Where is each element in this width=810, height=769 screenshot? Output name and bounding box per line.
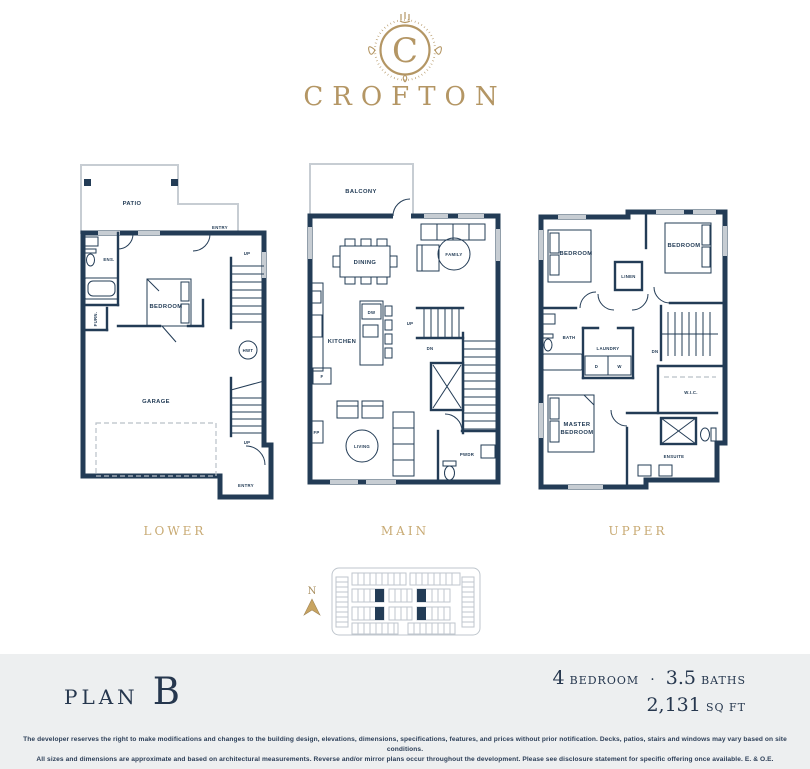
specs-line-1: 4 BEDROOM · 3.5 BATHS	[552, 666, 746, 693]
bed-label: BEDROOM	[570, 674, 640, 687]
bed-count: 4	[552, 667, 564, 689]
info-band: PLAN B 4 BEDROOM · 3.5 BATHS 2,131 SQ FT…	[0, 654, 810, 769]
room-label-bedroom: BEDROOM	[149, 304, 182, 310]
bath-label: BATHS	[701, 674, 746, 687]
hwt-label: HWT	[243, 348, 254, 353]
room-label-bedroom-right: BEDROOM	[667, 243, 700, 249]
stairs-up-label2: UP	[244, 440, 251, 445]
room-label-living: LIVING	[354, 444, 370, 449]
room-label-master-1: MASTER	[564, 422, 591, 428]
north-arrow-icon	[304, 599, 320, 615]
room-label-ens: ENS.	[103, 257, 114, 262]
room-label-linen: LINEN	[621, 274, 635, 279]
stairs-up-label: UP	[407, 321, 414, 326]
fridge-label: F	[321, 374, 324, 379]
monogram-letter: C	[392, 31, 418, 71]
floor-label-upper: UPPER	[528, 524, 748, 538]
crofton-monogram-logo: C	[355, 10, 455, 84]
lower-walls	[83, 233, 271, 497]
brochure-page: C CROFTON PATIO ENTRY ENS. FURN.	[0, 0, 810, 769]
plan-title: PLAN B	[64, 670, 180, 713]
room-label-entry-bottom: ENTRY	[238, 483, 254, 488]
room-label-dining: DINING	[354, 260, 377, 266]
disclaimer-line-1: The developer reserves the right to make…	[20, 735, 790, 755]
room-label-patio: PATIO	[123, 201, 142, 207]
specs-line-2: 2,131 SQ FT	[552, 693, 746, 720]
room-label-ensuite: ENSUITE	[664, 454, 685, 459]
bath-count: 3.5	[666, 667, 696, 689]
dw-label: DW	[368, 310, 376, 315]
room-label-entry-top: ENTRY	[212, 225, 228, 230]
room-label-furn: FURN.	[93, 312, 98, 327]
room-label-bath: BATH	[563, 335, 576, 340]
specs-separator: ·	[644, 672, 660, 688]
stairs-up-label: UP	[244, 251, 251, 256]
floor-label-main: MAIN	[300, 524, 510, 538]
floorplan-lower: PATIO ENTRY ENS. FURN.	[60, 160, 290, 505]
area-label: SQ FT	[706, 701, 746, 714]
brand-name: CROFTON	[0, 82, 810, 112]
area-value: 2,131	[646, 694, 700, 716]
room-label-balcony: BALCONY	[345, 189, 376, 195]
dryer-label: D	[595, 364, 598, 369]
floorplan-upper: BEDROOM BEDROOM LINEN BATH	[528, 198, 748, 493]
room-label-pwdr: PWDR	[460, 452, 475, 457]
room-label-master-2: BEDROOM	[560, 430, 593, 436]
compass-north-label: N	[308, 586, 317, 597]
crown-icon	[400, 12, 410, 23]
plan-specs: 4 BEDROOM · 3.5 BATHS 2,131 SQ FT	[552, 666, 746, 720]
stairs-dn-label: DN	[652, 349, 659, 354]
patio-outline	[81, 165, 238, 233]
floor-label-lower: LOWER	[60, 524, 290, 538]
room-label-wic: W.I.C.	[684, 390, 698, 395]
room-label-family: FAMILY	[445, 252, 462, 257]
room-label-bedroom-left: BEDROOM	[559, 251, 592, 257]
stairs-dn-label: DN	[427, 346, 434, 351]
washer-label: W	[617, 364, 622, 369]
floorplan-main: BALCONY DINING FAMILY	[300, 155, 510, 500]
site-plan: N	[295, 563, 495, 648]
room-label-kitchen: KITCHEN	[328, 339, 357, 345]
disclaimer-line-2: All sizes and dimensions are approximate…	[20, 755, 790, 765]
plan-letter: B	[153, 670, 180, 713]
plan-prefix: PLAN	[64, 685, 139, 709]
room-label-garage: GARAGE	[142, 399, 170, 405]
room-label-laundry: LAUNDRY	[597, 346, 620, 351]
disclaimer: The developer reserves the right to make…	[20, 735, 790, 765]
fp-label: FP	[313, 430, 319, 435]
